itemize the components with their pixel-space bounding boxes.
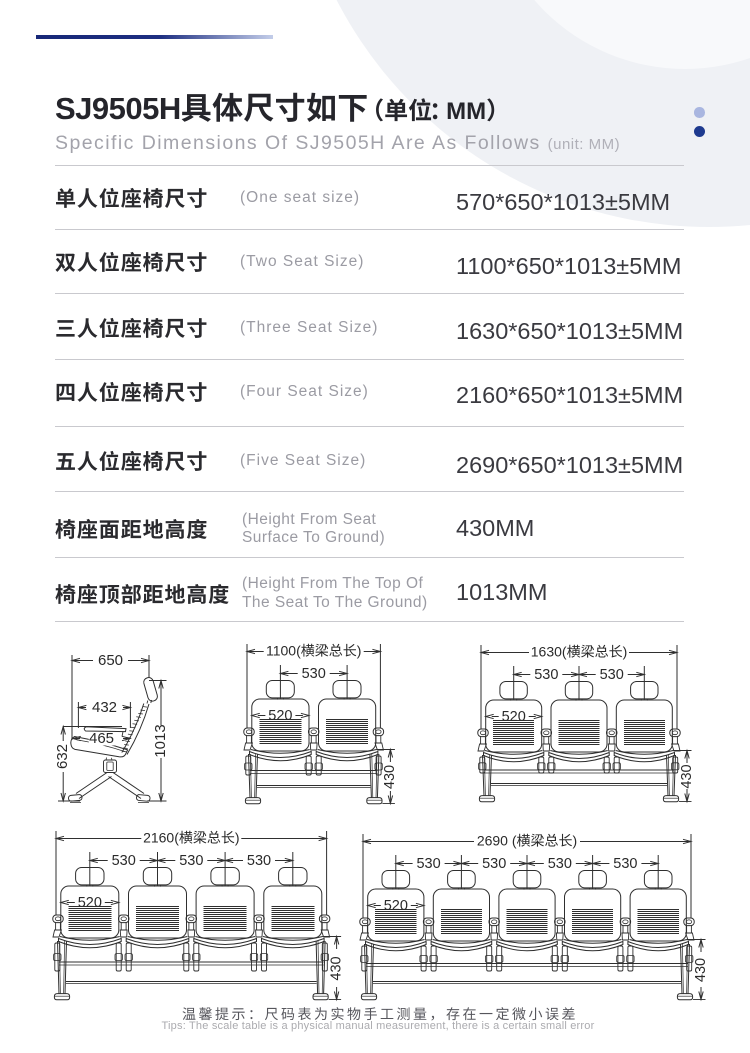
svg-text:530: 530 [548,856,572,872]
svg-text:2160(横梁总长): 2160(横梁总长) [143,830,239,846]
svg-text:432: 432 [92,699,117,716]
svg-text:530: 530 [534,667,558,683]
svg-text:530: 530 [112,853,136,869]
svg-text:520: 520 [78,895,102,911]
svg-text:530: 530 [482,856,506,872]
svg-text:430: 430 [693,958,709,982]
svg-text:530: 530 [179,853,203,869]
svg-text:530: 530 [302,666,326,682]
svg-text:530: 530 [600,667,624,683]
svg-text:650: 650 [98,652,123,669]
svg-text:530: 530 [416,856,440,872]
svg-text:430: 430 [328,956,344,980]
svg-text:530: 530 [613,856,637,872]
svg-text:2690 (横梁总长): 2690 (横梁总长) [477,833,577,849]
svg-text:520: 520 [384,898,408,914]
svg-text:632: 632 [54,744,71,769]
svg-text:1013: 1013 [152,724,169,757]
svg-text:465: 465 [89,730,114,747]
svg-text:430: 430 [679,764,695,788]
svg-text:430: 430 [382,765,398,789]
svg-text:520: 520 [268,708,292,724]
svg-text:530: 530 [247,853,271,869]
svg-text:1100(横梁总长): 1100(横梁总长) [266,643,361,659]
svg-text:520: 520 [502,709,526,725]
svg-text:1630(横梁总长): 1630(横梁总长) [531,644,627,660]
